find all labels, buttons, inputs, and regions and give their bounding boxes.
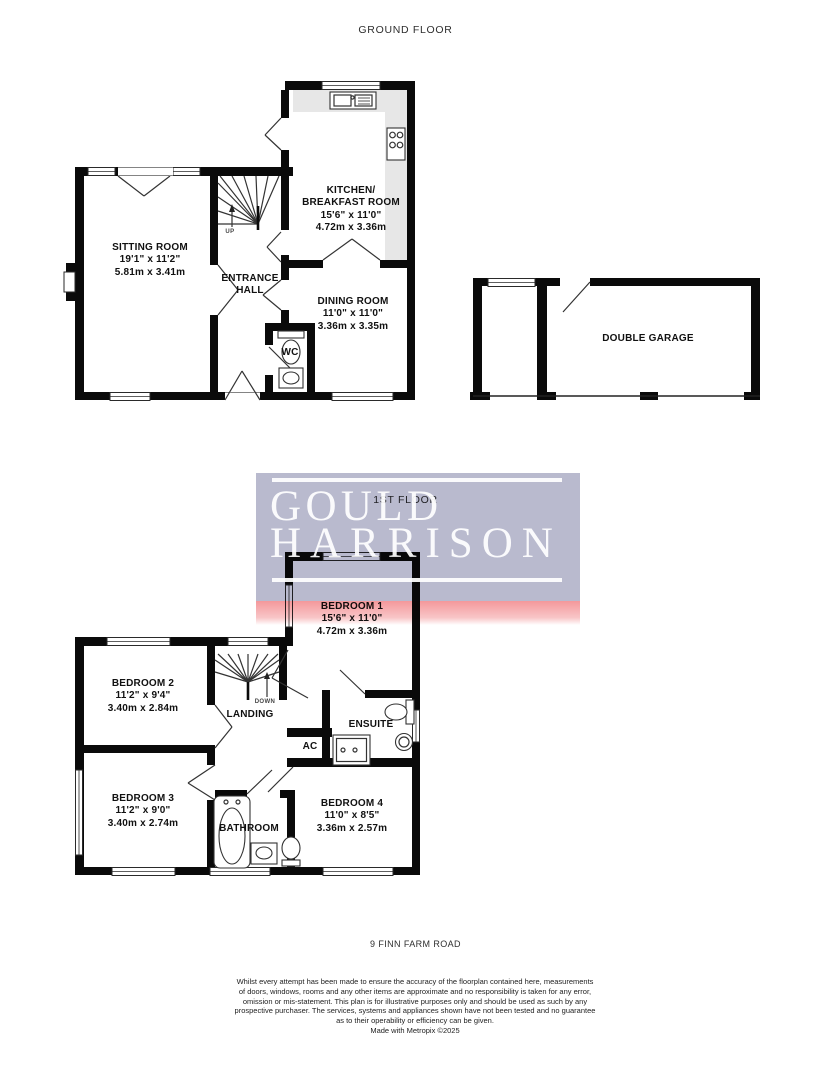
disclaimer-line: omission or mis-statement. This plan is … [211,997,619,1007]
disclaimer-line: as to their operability or efficiency ca… [211,1016,619,1026]
metropix-credit: Made with Metropix ©2025 [211,1026,619,1036]
shower-icon [333,735,370,765]
disclaimer-line: Whilst every attempt has been made to en… [211,977,619,987]
stairs-direction: DOWN [248,696,282,708]
room-label-ac: AC [291,741,329,753]
room-dim-metric: 3.36m x 3.35m [295,321,411,333]
room-name: ENSUITE [332,719,410,731]
kitchen-sink-icon [330,92,376,109]
room-dim-imperial: 11'2" x 9'0" [78,805,208,817]
gf-walls [66,81,760,400]
room-name: BATHROOM [200,823,298,835]
room-name: BEDROOM 1 [292,601,412,613]
room-dim-imperial: 11'2" x 9'4" [78,690,208,702]
room-label-landing: LANDING [200,709,300,721]
room-label-entrance-hall: ENTRANCE HALL [203,273,297,298]
room-dim-metric: 4.72m x 3.36m [292,626,412,638]
room-label-bedroom3: BEDROOM 3 11'2" x 9'0" 3.40m x 2.74m [78,793,208,830]
room-dim-imperial: 15'6" x 11'0" [293,210,409,222]
room-label-kitchen: KITCHEN/ BREAKFAST ROOM 15'6" x 11'0" 4.… [293,185,409,235]
room-name: BEDROOM 2 [78,678,208,690]
room-name: KITCHEN/ [293,185,409,197]
room-name: BEDROOM 4 [292,798,412,810]
room-dim-metric: 3.40m x 2.84m [78,703,208,715]
room-name: SITTING ROOM [75,242,225,254]
sink-icon [279,368,303,388]
room-label-bedroom4: BEDROOM 4 11'0" x 8'5" 3.36m x 2.57m [292,798,412,835]
floorplan-page: GROUND FLOOR 1ST FLOOR [0,0,831,1080]
disclaimer-line: prospective purchaser. The services, sys… [211,1006,619,1016]
room-dim-imperial: 15'6" x 11'0" [292,613,412,625]
bay-window-marker [64,272,75,292]
bathroom-sink-icon [251,843,277,864]
room-label-double-garage: DOUBLE GARAGE [573,333,723,345]
stairs-direction: UP [213,226,247,238]
stairs-up-label: UP [213,226,247,238]
room-name: BREAKFAST ROOM [293,197,409,209]
property-address: 9 FINN FARM ROAD [0,939,831,949]
bathroom-toilet-icon [282,837,300,866]
room-dim-imperial: 19'1" x 11'2" [75,254,225,266]
room-name: DINING ROOM [295,296,411,308]
room-name: LANDING [200,709,300,721]
watermark-word-gould: GOULD [270,485,442,528]
room-dim-metric: 3.40m x 2.74m [78,818,208,830]
ensuite-sink-icon [396,734,413,751]
room-dim-imperial: 11'0" x 11'0" [295,308,411,320]
first-floor-title: 1ST FLOOR [0,494,811,506]
room-name: DOUBLE GARAGE [573,333,723,345]
stairs-up-icon [218,176,279,230]
stairs-down-icon [215,654,279,700]
room-label-bathroom: BATHROOM [200,823,298,835]
room-name: WC [268,347,312,359]
disclaimer-text: Whilst every attempt has been made to en… [211,977,619,1036]
ground-floor-title: GROUND FLOOR [0,24,811,36]
hob-icon [387,128,405,160]
room-name: HALL [203,285,297,297]
room-dim-metric: 4.72m x 3.36m [293,222,409,234]
stairs-down-label: DOWN [248,696,282,708]
watermark-top-rule [272,478,562,482]
room-label-dining-room: DINING ROOM 11'0" x 11'0" 3.36m x 3.35m [295,296,411,333]
room-label-wc: WC [268,347,312,359]
room-label-ensuite: ENSUITE [332,719,410,731]
room-name: ENTRANCE [203,273,297,285]
room-dim-metric: 3.36m x 2.57m [292,823,412,835]
room-dim-imperial: 11'0" x 8'5" [292,810,412,822]
room-name: BEDROOM 3 [78,793,208,805]
room-name: AC [291,741,329,753]
disclaimer-line: of doors, windows, rooms and any other i… [211,987,619,997]
room-label-bedroom2: BEDROOM 2 11'2" x 9'4" 3.40m x 2.84m [78,678,208,715]
room-label-bedroom1: BEDROOM 1 15'6" x 11'0" 4.72m x 3.36m [292,601,412,638]
